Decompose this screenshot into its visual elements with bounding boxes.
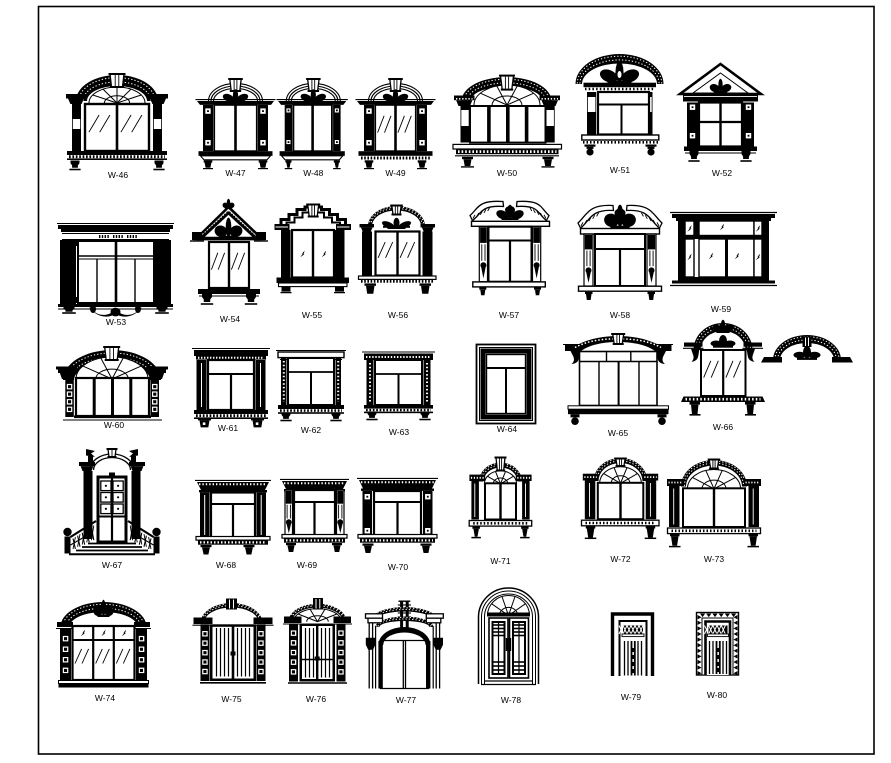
svg-text:W-50: W-50 (497, 168, 517, 178)
svg-text:W-69: W-69 (297, 560, 317, 570)
svg-text:W-78: W-78 (501, 695, 521, 705)
svg-text:W-76: W-76 (306, 694, 326, 704)
svg-text:W-73: W-73 (704, 554, 724, 564)
svg-text:W-64: W-64 (497, 424, 517, 434)
svg-text:W-72: W-72 (610, 554, 630, 564)
svg-text:W-49: W-49 (385, 168, 405, 178)
svg-text:W-68: W-68 (216, 560, 236, 570)
svg-text:W-61: W-61 (218, 423, 238, 433)
svg-text:W-58: W-58 (610, 310, 630, 320)
svg-text:W-46: W-46 (108, 170, 128, 180)
svg-text:W-47: W-47 (225, 168, 245, 178)
svg-text:W-48: W-48 (303, 168, 323, 178)
svg-text:W-57: W-57 (499, 310, 519, 320)
svg-text:W-65: W-65 (608, 428, 628, 438)
svg-text:W-60: W-60 (104, 420, 124, 430)
svg-text:W-51: W-51 (610, 165, 630, 175)
svg-text:W-74: W-74 (95, 693, 115, 703)
svg-text:W-56: W-56 (388, 310, 408, 320)
svg-text:W-71: W-71 (490, 556, 510, 566)
svg-text:W-75: W-75 (221, 694, 241, 704)
svg-text:W-52: W-52 (712, 168, 732, 178)
svg-text:W-53: W-53 (106, 317, 126, 327)
svg-text:W-55: W-55 (302, 310, 322, 320)
svg-text:W-63: W-63 (389, 427, 409, 437)
svg-text:W-80: W-80 (707, 690, 727, 700)
svg-text:W-62: W-62 (301, 425, 321, 435)
svg-text:W-70: W-70 (388, 562, 408, 572)
svg-text:W-54: W-54 (220, 314, 240, 324)
svg-text:W-77: W-77 (396, 695, 416, 705)
svg-text:W-66: W-66 (713, 422, 733, 432)
svg-text:W-59: W-59 (711, 304, 731, 314)
svg-text:W-67: W-67 (102, 560, 122, 570)
svg-text:W-79: W-79 (621, 692, 641, 702)
